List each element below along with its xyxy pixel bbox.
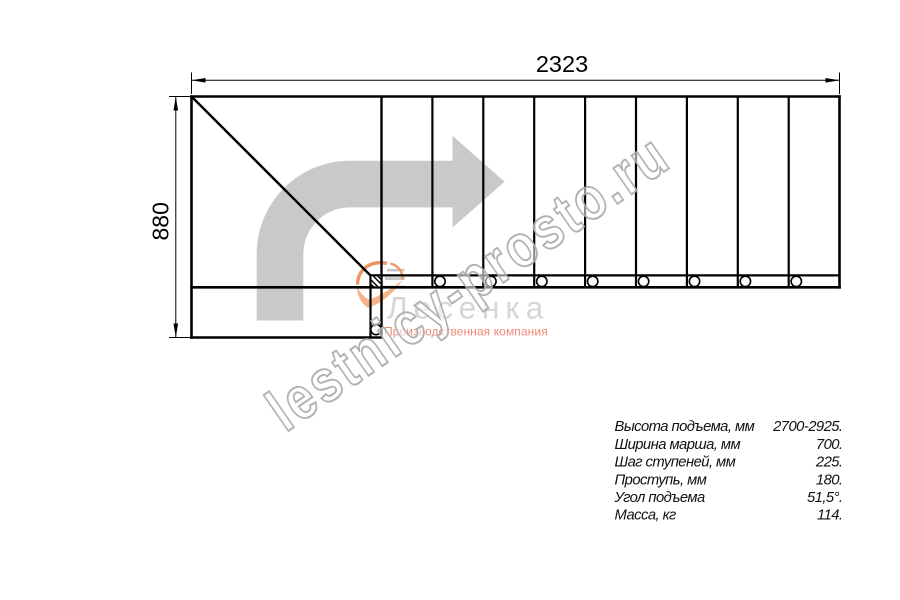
svg-text:Угол подъема: Угол подъема [614, 490, 706, 506]
svg-text:180.: 180. [816, 472, 843, 488]
svg-text:880: 880 [148, 202, 174, 240]
svg-text:114.: 114. [817, 508, 843, 524]
svg-text:700.: 700. [816, 437, 843, 453]
svg-text:2700-2925.: 2700-2925. [772, 419, 842, 435]
svg-text:51,5°.: 51,5°. [807, 490, 843, 506]
svg-text:225.: 225. [815, 455, 843, 471]
svg-text:2323: 2323 [536, 51, 588, 77]
svg-text:Ширина марша, мм: Ширина марша, мм [615, 437, 741, 453]
svg-text:Масса, кг: Масса, кг [615, 508, 677, 524]
svg-text:Шаг ступеней, мм: Шаг ступеней, мм [615, 455, 736, 471]
svg-text:Высота подъема, мм: Высота подъема, мм [615, 419, 755, 435]
svg-text:Проступь, мм: Проступь, мм [615, 472, 707, 488]
